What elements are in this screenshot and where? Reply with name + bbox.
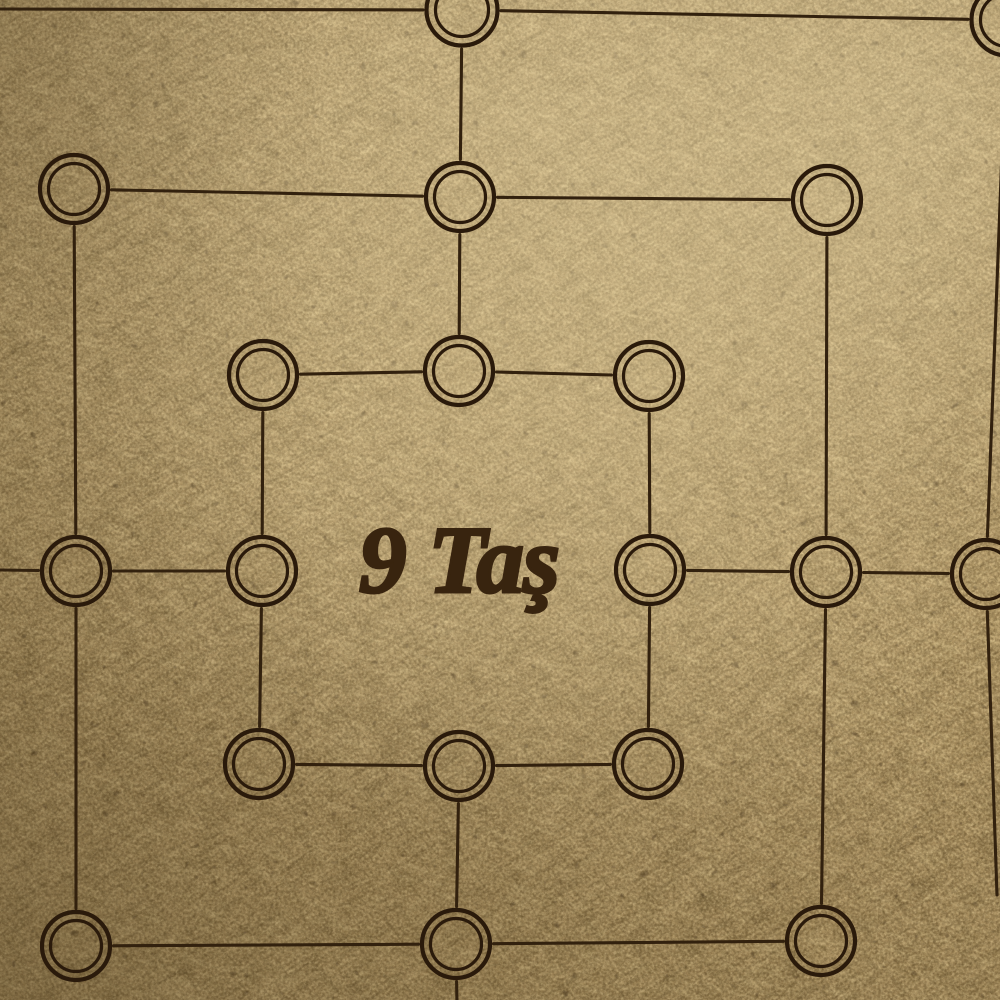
- svg-text:9 Taş: 9 Taş: [359, 507, 559, 613]
